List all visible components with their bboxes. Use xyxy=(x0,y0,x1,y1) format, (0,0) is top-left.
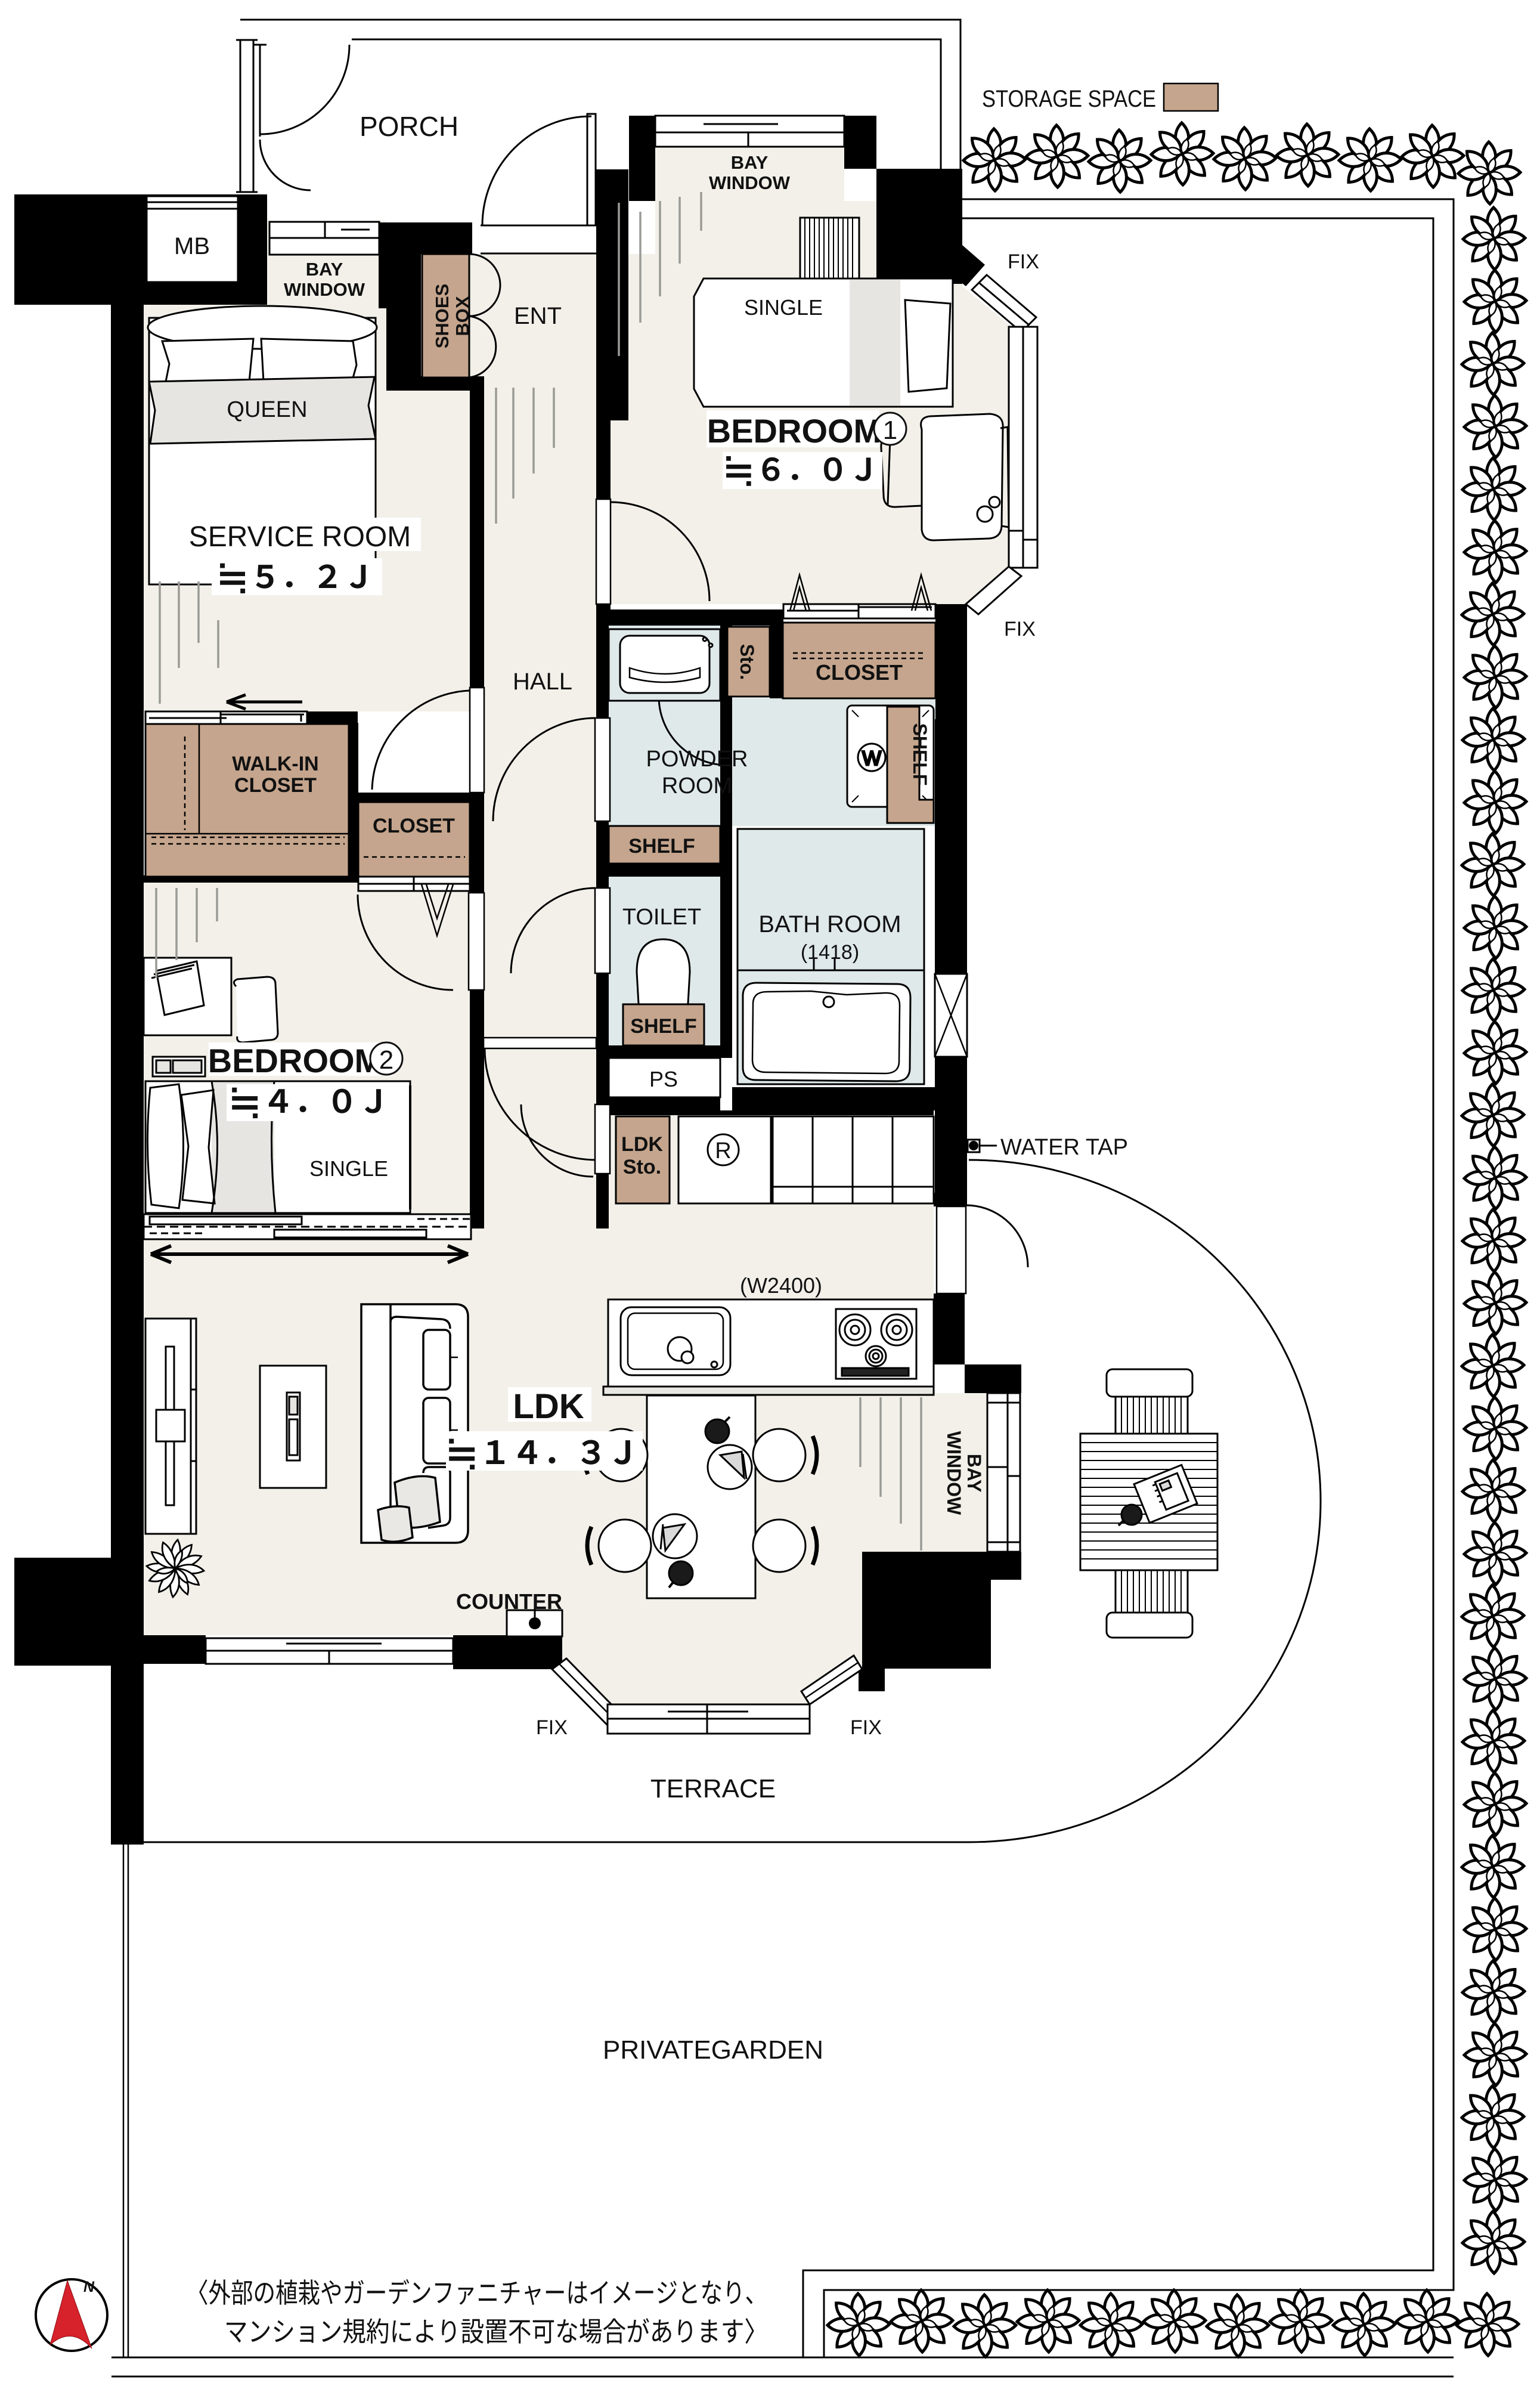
svg-text:LDK: LDK xyxy=(513,1387,584,1426)
svg-text:FIX: FIX xyxy=(1008,250,1039,273)
svg-text:WATER TAP: WATER TAP xyxy=(1000,1135,1128,1160)
svg-text:FIX: FIX xyxy=(1004,618,1036,640)
svg-text:ENT: ENT xyxy=(514,303,562,329)
svg-text:CLOSET: CLOSET xyxy=(373,815,455,837)
svg-text:FIX: FIX xyxy=(850,1716,882,1739)
svg-text:SHOES: SHOES xyxy=(432,284,453,349)
svg-text:BAY: BAY xyxy=(306,259,343,280)
svg-text:CLOSET: CLOSET xyxy=(816,660,903,685)
svg-text:PORCH: PORCH xyxy=(360,111,458,142)
svg-text:ROOM: ROOM xyxy=(662,773,732,799)
svg-text:BEDROOM: BEDROOM xyxy=(208,1042,382,1079)
svg-text:WALK-IN: WALK-IN xyxy=(232,753,318,775)
svg-text:SHELF: SHELF xyxy=(628,835,695,858)
svg-text:(W2400): (W2400) xyxy=(740,1273,822,1298)
svg-text:WINDOW: WINDOW xyxy=(943,1431,965,1515)
svg-text:POWDER: POWDER xyxy=(646,747,748,772)
svg-text:COUNTER: COUNTER xyxy=(456,1589,562,1614)
svg-text:N: N xyxy=(83,2279,95,2295)
svg-text:FIX: FIX xyxy=(536,1716,568,1739)
svg-text:R: R xyxy=(715,1138,731,1163)
svg-text:PS: PS xyxy=(649,1067,678,1091)
svg-text:BATH ROOM: BATH ROOM xyxy=(758,911,901,937)
svg-text:(1418): (1418) xyxy=(801,941,859,964)
svg-text:TOILET: TOILET xyxy=(622,905,701,930)
svg-text:SERVICE ROOM: SERVICE ROOM xyxy=(189,521,411,553)
svg-text:LDK: LDK xyxy=(621,1133,663,1156)
svg-text:CLOSET: CLOSET xyxy=(234,774,317,797)
svg-text:2: 2 xyxy=(379,1045,393,1075)
svg-text:HALL: HALL xyxy=(513,669,572,695)
svg-text:PRIVATEGARDEN: PRIVATEGARDEN xyxy=(603,2035,823,2065)
svg-text:SINGLE: SINGLE xyxy=(309,1156,388,1181)
svg-text:WINDOW: WINDOW xyxy=(284,279,365,300)
svg-text:BOX: BOX xyxy=(452,296,473,336)
svg-text:SHELF: SHELF xyxy=(630,1015,696,1038)
svg-text:BAY: BAY xyxy=(731,152,769,173)
svg-text:BAY: BAY xyxy=(963,1454,985,1493)
svg-text:QUEEN: QUEEN xyxy=(227,397,307,422)
svg-text:MB: MB xyxy=(174,233,210,259)
svg-text:Sto.: Sto. xyxy=(623,1156,661,1178)
svg-text:W: W xyxy=(862,747,881,770)
svg-text:STORAGE SPACE: STORAGE SPACE xyxy=(982,86,1156,112)
svg-text:Sto.: Sto. xyxy=(736,644,758,680)
svg-text:SINGLE: SINGLE xyxy=(744,295,823,320)
svg-text:WINDOW: WINDOW xyxy=(709,172,791,193)
svg-text:BEDROOM: BEDROOM xyxy=(707,412,881,450)
svg-text:TERRACE: TERRACE xyxy=(650,1774,776,1803)
svg-text:1: 1 xyxy=(883,416,897,445)
svg-text:SHELF: SHELF xyxy=(909,723,931,786)
